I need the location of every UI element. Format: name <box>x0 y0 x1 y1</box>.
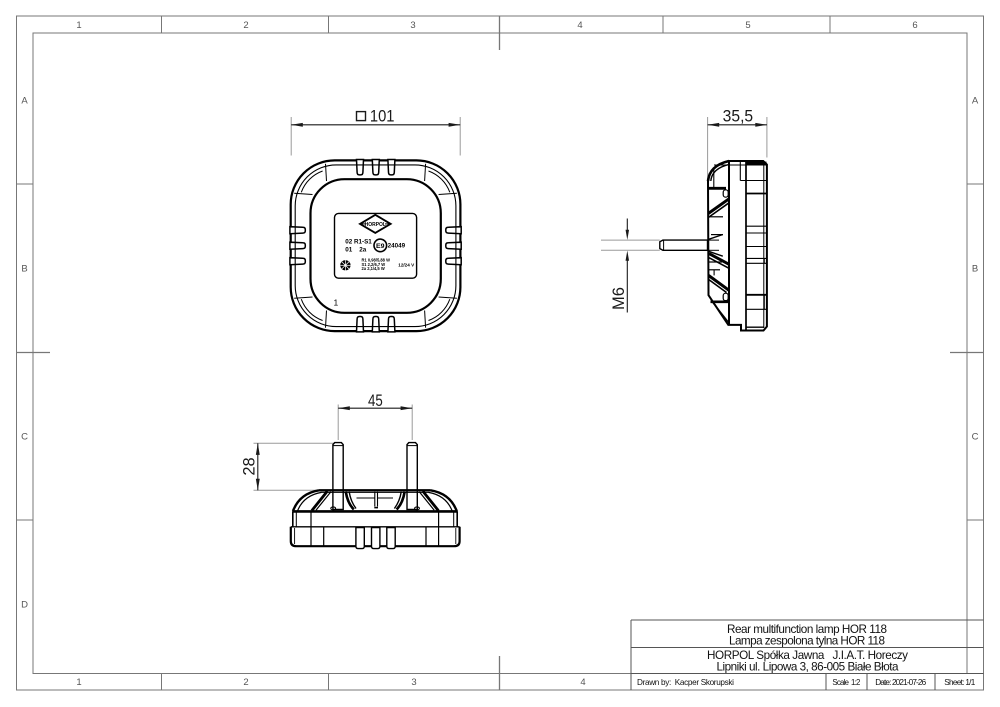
svg-text:B: B <box>21 264 27 275</box>
svg-text:HORPOL: HORPOL <box>365 222 386 228</box>
svg-text:6: 6 <box>912 20 917 31</box>
svg-text:2: 2 <box>243 677 248 688</box>
svg-text:2: 2 <box>243 20 248 31</box>
svg-text:01 2a: 01 2a <box>345 248 367 254</box>
svg-text:Date: 2021-07-26: Date: 2021-07-26 <box>875 678 926 687</box>
svg-text:1: 1 <box>334 298 339 308</box>
svg-text:3: 3 <box>411 677 416 688</box>
svg-text:M6: M6 <box>609 287 628 310</box>
svg-text:12/24 V: 12/24 V <box>398 263 415 268</box>
svg-text:1: 1 <box>76 677 81 688</box>
svg-text:02 R1-S1: 02 R1-S1 <box>345 239 372 245</box>
svg-text:A: A <box>972 96 979 107</box>
svg-text:1: 1 <box>76 20 81 31</box>
svg-text:35,5: 35,5 <box>723 106 754 125</box>
svg-text:5: 5 <box>745 20 750 31</box>
svg-text:Lampa zespolona tylna HOR 118: Lampa zespolona tylna HOR 118 <box>729 635 885 648</box>
svg-text:Scale 1:2: Scale 1:2 <box>832 678 860 687</box>
svg-text:D: D <box>21 600 28 611</box>
svg-text:24049: 24049 <box>388 244 406 250</box>
svg-text:28: 28 <box>240 457 259 475</box>
svg-text:A: A <box>21 96 28 107</box>
svg-text:E9: E9 <box>376 243 385 250</box>
svg-text:3: 3 <box>410 20 415 31</box>
svg-text:4: 4 <box>580 677 585 688</box>
svg-text:Lipniki ul. Lipowa 3, 86-005 B: Lipniki ul. Lipowa 3, 86-005 Białe Błota <box>717 661 899 674</box>
svg-text:C: C <box>972 432 979 443</box>
svg-text:Drawn by: Kacper Skorupski: Drawn by: Kacper Skorupski <box>637 678 734 687</box>
svg-text:2a 2,1/4,5 W: 2a 2,1/4,5 W <box>362 266 385 271</box>
svg-text:Sheet: 1/1: Sheet: 1/1 <box>944 678 975 687</box>
svg-text:B: B <box>972 264 978 275</box>
svg-text:45: 45 <box>368 391 383 410</box>
svg-text:101: 101 <box>370 107 395 126</box>
svg-text:4: 4 <box>577 20 582 31</box>
svg-text:C: C <box>21 432 28 443</box>
